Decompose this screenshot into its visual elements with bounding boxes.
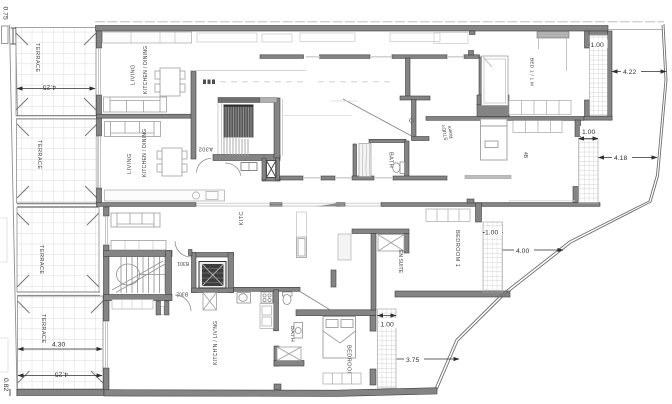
svg-text:4B: 4B <box>522 152 528 159</box>
svg-text:KITCHEN / DINING: KITCHEN / DINING <box>142 129 148 177</box>
svg-text:1.00: 1.00 <box>582 129 595 136</box>
svg-text:KITCH'N / LIV'NG: KITCH'N / LIV'NG <box>213 321 219 366</box>
svg-text:BED 1 / 1.M: BED 1 / 1.M <box>529 58 535 86</box>
svg-text:3.75: 3.75 <box>406 357 419 364</box>
svg-text:B301: B301 <box>177 260 189 266</box>
svg-text:LIVING: LIVING <box>131 64 137 85</box>
svg-text:4.30: 4.30 <box>52 342 65 349</box>
svg-text:4.18: 4.18 <box>614 155 627 162</box>
svg-text:TERRACE: TERRACE <box>34 43 40 73</box>
svg-text:BEDROOM 1: BEDROOM 1 <box>454 230 460 267</box>
svg-text:0.75: 0.75 <box>2 7 9 20</box>
svg-text:1.00: 1.00 <box>591 42 604 49</box>
svg-text:BEDROOM: BEDROOM <box>346 345 352 377</box>
svg-text:1.00: 1.00 <box>381 322 394 329</box>
svg-text:1.00: 1.00 <box>485 230 498 237</box>
svg-text:4.25: 4.25 <box>55 371 68 378</box>
svg-text:B302: B302 <box>176 291 188 297</box>
svg-text:4.22: 4.22 <box>623 69 636 76</box>
svg-text:EN SUITE: EN SUITE <box>397 250 403 274</box>
svg-text:LIVING: LIVING <box>127 153 133 174</box>
svg-text:BATH: BATH <box>388 152 394 168</box>
svg-text:TERRACE: TERRACE <box>36 140 42 170</box>
svg-text:KITCHEN / DINING: KITCHEN / DINING <box>143 46 149 94</box>
svg-text:TERRACE: TERRACE <box>38 245 44 275</box>
svg-text:4.25: 4.25 <box>43 84 56 91</box>
svg-text:4.00: 4.00 <box>516 248 529 255</box>
svg-text:KITC: KITC <box>239 211 245 225</box>
svg-text:A302: A302 <box>198 146 213 152</box>
svg-text:0.82: 0.82 <box>2 378 9 391</box>
svg-text:TERRACE: TERRACE <box>40 314 46 344</box>
